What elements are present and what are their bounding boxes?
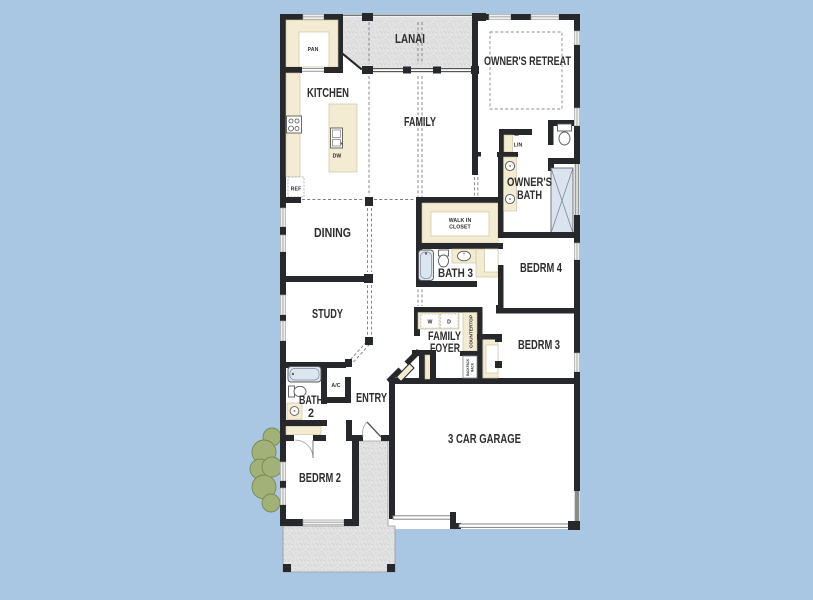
svg-text:FAMILY: FAMILY: [428, 331, 461, 343]
svg-text:A/C: A/C: [331, 383, 340, 389]
svg-text:DW: DW: [333, 154, 342, 160]
svg-text:W: W: [428, 320, 433, 326]
svg-text:BATH 3: BATH 3: [438, 268, 473, 280]
svg-text:WALK IN: WALK IN: [449, 218, 472, 224]
svg-text:LANAI: LANAI: [395, 32, 425, 46]
svg-text:COUNTERTOP: COUNTERTOP: [468, 315, 473, 348]
svg-text:D: D: [447, 320, 451, 326]
svg-text:PAN: PAN: [308, 47, 319, 53]
svg-text:LIN: LIN: [514, 143, 523, 149]
svg-text:BATH: BATH: [517, 190, 542, 202]
svg-text:CLOSET: CLOSET: [449, 225, 471, 231]
svg-text:BATH: BATH: [299, 395, 323, 407]
svg-text:DINING: DINING: [314, 226, 351, 240]
svg-text:RACK: RACK: [471, 363, 475, 372]
svg-text:2: 2: [308, 408, 314, 420]
svg-text:ENTRY: ENTRY: [356, 391, 387, 405]
svg-text:BEDRM 3: BEDRM 3: [518, 338, 560, 352]
svg-text:BEDRM 2: BEDRM 2: [299, 471, 341, 485]
svg-text:REF: REF: [291, 187, 302, 193]
svg-text:STUDY: STUDY: [312, 307, 343, 321]
svg-text:FAMILY: FAMILY: [404, 115, 436, 129]
svg-text:FOYER: FOYER: [430, 343, 461, 355]
svg-text:OWNER'S RETREAT: OWNER'S RETREAT: [484, 56, 571, 68]
svg-text:OWNER'S: OWNER'S: [507, 177, 552, 189]
svg-text:KITCHEN: KITCHEN: [307, 86, 349, 100]
svg-text:BACKPACK: BACKPACK: [466, 359, 470, 376]
svg-text:3 CAR GARAGE: 3 CAR GARAGE: [448, 432, 521, 446]
svg-text:BEDRM 4: BEDRM 4: [520, 261, 562, 275]
